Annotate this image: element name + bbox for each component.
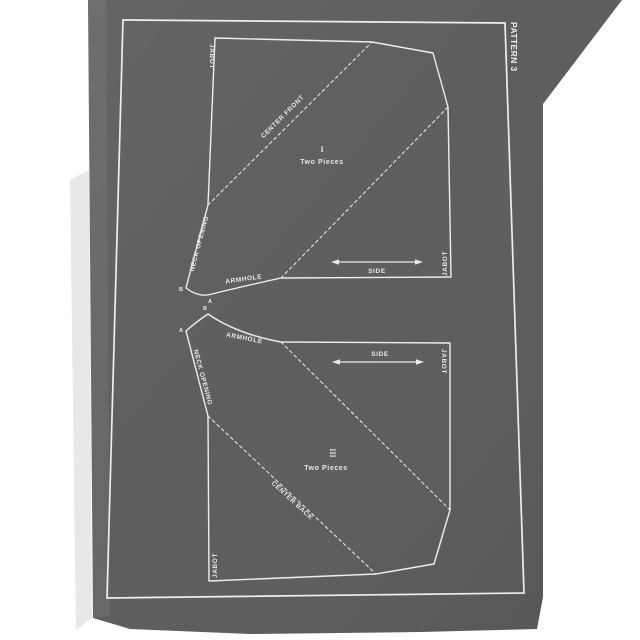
back-piece-numeral: III [328, 448, 337, 457]
jabot-label: JABOT [442, 251, 449, 276]
jabot-label: JABOT [440, 349, 447, 374]
jabot-label: JABOT [212, 553, 219, 578]
front-pieces-count-label: Two Pieces [300, 159, 344, 166]
side-label: SIDE [371, 351, 389, 358]
pattern-plate-svg: PATTERN 3 JABOT CENTER FRONT NECK OPENIN… [0, 0, 640, 640]
blueprint-photo: PATTERN 3 JABOT CENTER FRONT NECK OPENIN… [0, 0, 640, 640]
point-a-label: A [179, 328, 183, 334]
jabot-label: JABOT [208, 44, 215, 69]
point-b-label: B [203, 306, 207, 312]
point-a-label: A [208, 299, 212, 305]
front-piece-numeral: I [320, 145, 323, 154]
point-b-label: B [179, 287, 183, 293]
pattern-number-label: PATTERN 3 [509, 22, 519, 72]
plate-lighting [88, 0, 622, 634]
side-label: SIDE [368, 268, 386, 275]
back-pieces-count-label: Two Pieces [304, 465, 348, 472]
